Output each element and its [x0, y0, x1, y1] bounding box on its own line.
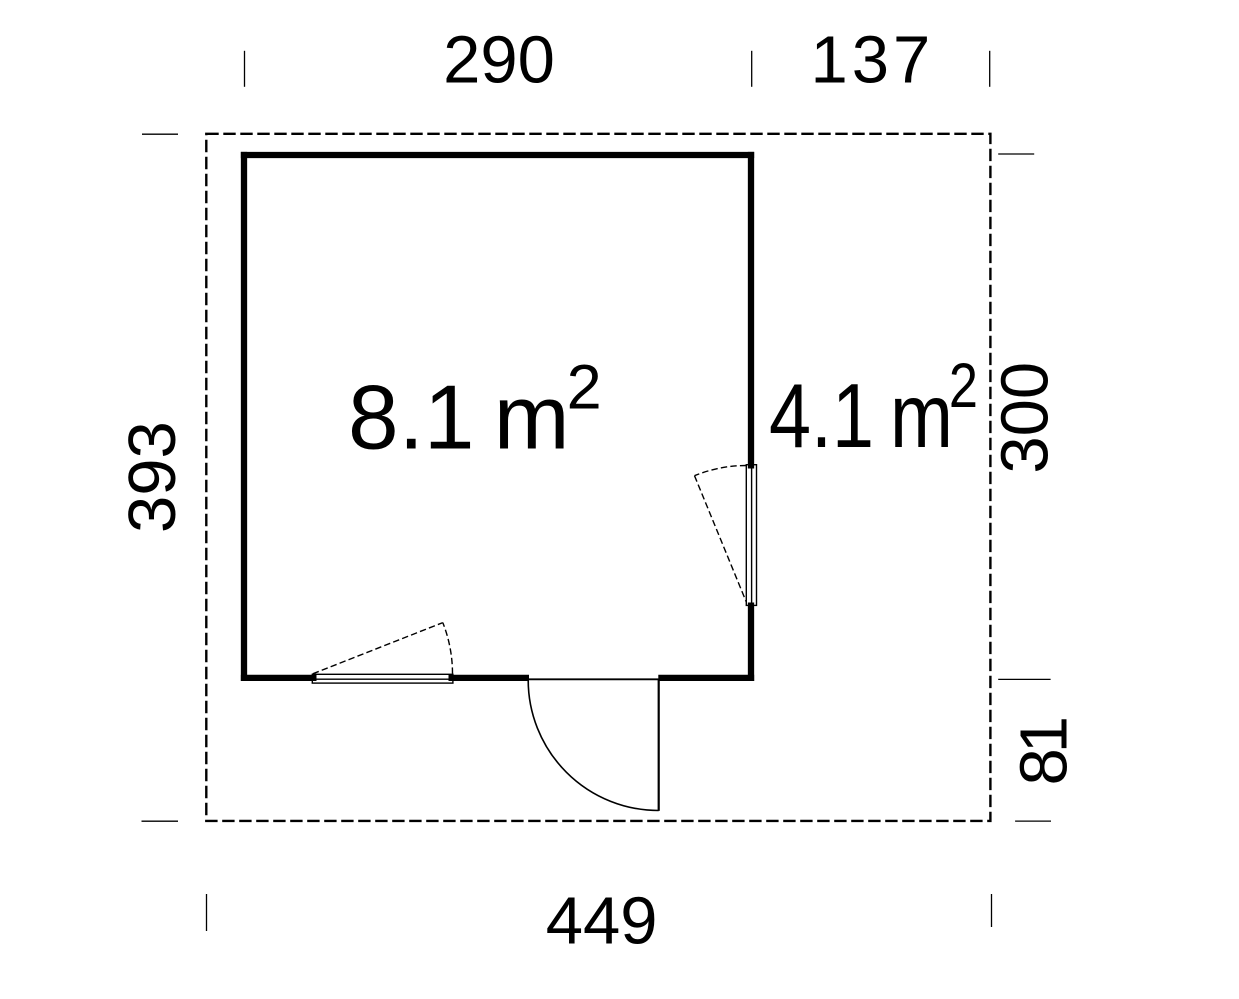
svg-text:290: 290: [443, 23, 555, 98]
svg-text:8.1 m2: 8.1 m2: [348, 352, 602, 468]
svg-text:4.1 m2: 4.1 m2: [769, 351, 978, 466]
svg-text:300: 300: [988, 362, 1063, 474]
svg-text:393: 393: [115, 421, 190, 533]
svg-text:449: 449: [546, 884, 658, 959]
svg-text:81: 81: [1006, 719, 1081, 785]
svg-text:137: 137: [811, 23, 935, 98]
